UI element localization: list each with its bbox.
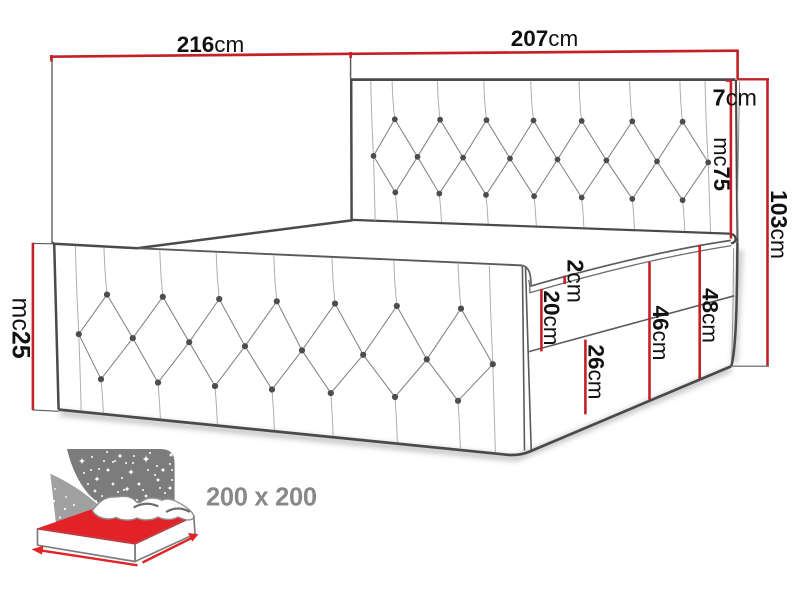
svg-text:46cm: 46cm	[648, 306, 673, 361]
svg-text:103cm: 103cm	[766, 190, 792, 259]
svg-text:207cm: 207cm	[511, 26, 579, 51]
svg-text:48cm: 48cm	[698, 288, 723, 343]
svg-text:mc75: mc75	[709, 137, 734, 191]
svg-text:20cm: 20cm	[539, 291, 564, 346]
svg-text:2cm: 2cm	[563, 260, 589, 303]
svg-text:200 x 200: 200 x 200	[206, 484, 317, 512]
svg-text:216cm: 216cm	[177, 32, 245, 57]
svg-text:26cm: 26cm	[584, 345, 609, 400]
svg-text:mc25: mc25	[6, 298, 34, 359]
svg-text:7cm: 7cm	[713, 85, 757, 111]
